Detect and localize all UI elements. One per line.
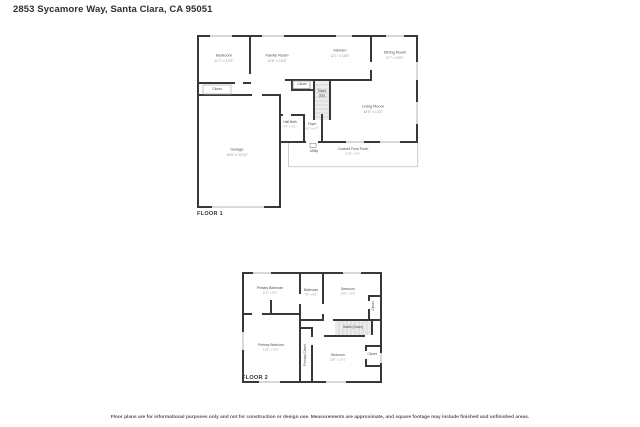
floor1-stairs-hatch [313,79,331,120]
floor2-plan: Primary Bathroom 11'0" x 8'6" Bathroom 7… [240,270,384,388]
floor1-plan: Bedroom 11'7" x 13'3" Closet Family Room… [196,32,422,218]
floor2-walls [240,270,384,388]
disclaimer-text: Floor plans are for informational purpos… [64,415,576,420]
floor2-stairs-hatch [335,321,371,335]
address-title: 2853 Sycamore Way, Santa Clara, CA 95051 [13,4,213,15]
floor2-label: FLOOR 2 [242,375,268,381]
floor1-walls [196,32,422,218]
floor1-label: FLOOR 1 [197,211,223,217]
